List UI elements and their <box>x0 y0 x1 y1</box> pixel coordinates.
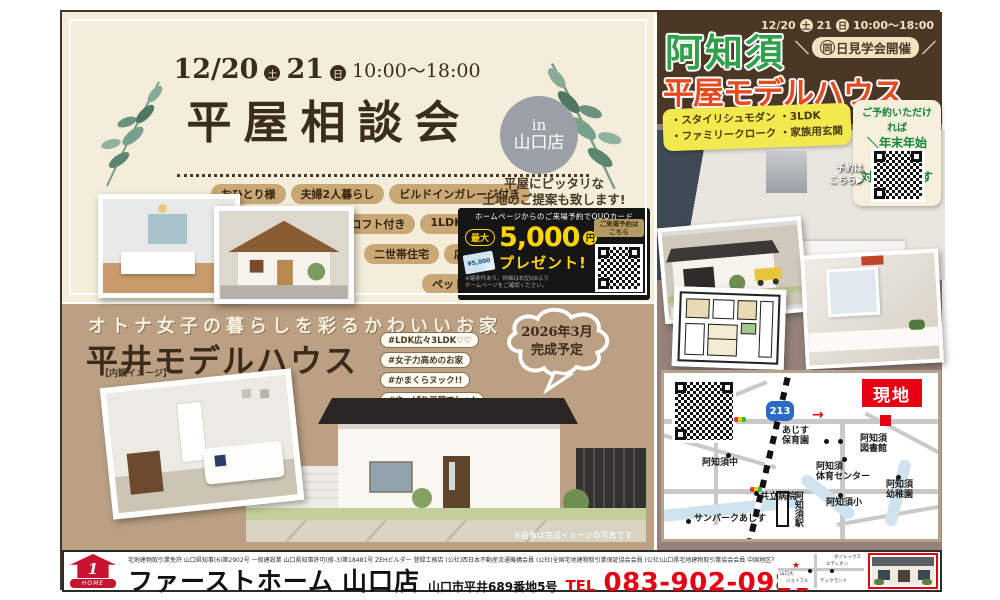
poi-kindergarten: 阿知須幼稚園 <box>886 481 913 501</box>
logo-home-label: HOME <box>70 579 116 588</box>
mini-map-label: ジョイフル <box>786 580 809 585</box>
same-day-tour-badge: ＼ 同 日見学会開催 ／ <box>795 37 936 58</box>
mini-map-label: 山口大 <box>780 573 794 578</box>
store-photo <box>868 553 938 589</box>
poi-hospital: 共立病院 <box>760 493 796 503</box>
address: 山口市平井689番地5号 <box>428 578 557 598</box>
event-time: 10:00～18:00 <box>352 56 481 85</box>
sunday-circle: 日 <box>330 65 346 81</box>
mini-map-label: ダイレックス <box>834 556 861 561</box>
binder-clip <box>861 251 884 265</box>
sunday-circle: 日 <box>836 19 849 32</box>
event-date: 12/20 土 21 日 10:00～18:00 <box>761 17 934 33</box>
date-value: 12/20 <box>173 54 258 85</box>
poi-nursery: あじす保育園 <box>782 427 809 447</box>
bush <box>922 579 932 585</box>
dining-table <box>127 451 163 495</box>
quo-present: プレゼント! <box>499 252 587 273</box>
main-house-render <box>244 370 648 542</box>
cushion <box>214 455 226 467</box>
company-name: ファーストホーム <box>128 562 334 598</box>
poi-gym: 阿知須体育センター <box>816 463 870 483</box>
quo-card-icon: ¥5,000 <box>463 251 496 275</box>
saturday-circle: 土 <box>264 65 280 81</box>
site-label: 現地 <box>862 379 922 407</box>
flyer: 12/20 土 21 日 10:00～18:00 平屋相談会 in 山口店 おひ… <box>60 10 940 590</box>
footer-bar: 1 HOME 宅地建物取引業免許 山口県知事(6)第2902号 一般建設業 山口… <box>62 550 942 592</box>
pendant-light <box>158 204 167 213</box>
company-logo: 1 HOME <box>70 554 116 588</box>
quo-campaign-box: ホームページからのご来場予約でQUOカード 最大 5,000 円 ¥5,000 … <box>458 208 650 300</box>
store-door <box>898 570 910 582</box>
route-213-shield: 213 <box>766 401 794 421</box>
completion-date: 2026年3月 完成予定 <box>492 324 622 359</box>
photo-vanity <box>800 248 944 369</box>
poi-dot <box>686 519 691 524</box>
poi-library: 阿知須図書館 <box>860 435 887 455</box>
event-title: 平屋相談会 <box>154 86 504 151</box>
bush <box>874 579 884 585</box>
left-panel: 12/20 土 21 日 10:00～18:00 平屋相談会 in 山口店 おひ… <box>62 12 654 302</box>
photo-living-interior <box>100 368 305 519</box>
tel-label: TEL <box>565 577 595 598</box>
road-line <box>814 554 817 588</box>
decor-slash: ／ <box>922 38 936 58</box>
vanity-mirror <box>826 266 880 317</box>
poi-junior-high: 阿知須中 <box>702 459 738 469</box>
poi-elementary: 阿知須小 <box>826 499 862 509</box>
poi-dot <box>754 491 759 496</box>
badge-store: 山口店 <box>514 134 565 154</box>
right-panel: 12/20 土 21 日 10:00～18:00 ＼ 同 日見学会開催 ／ 阿知… <box>654 12 942 550</box>
feature-tag: 二世帯住宅 <box>364 244 439 264</box>
vanity-counter <box>808 327 939 353</box>
photo-house-exterior <box>214 206 354 304</box>
quo-amount: 5,000 <box>499 224 579 251</box>
poi-dot <box>824 439 829 444</box>
site-star: ★ <box>792 562 800 571</box>
hashtag: #LDK広々3LDK♡♡ <box>380 332 479 348</box>
route-arrow: → <box>812 407 824 423</box>
traffic-signal <box>734 417 746 422</box>
qr-code <box>871 148 925 202</box>
circled-char: 同 <box>820 40 835 55</box>
qr-code <box>595 244 643 292</box>
reserve-here-label: 予約は こちら▶ <box>829 164 863 187</box>
mini-map-label: テックランド <box>820 580 847 585</box>
interior-image-label: 【内観イメージ】 <box>100 366 172 379</box>
middle-panel: オトナ女子の暮らしを彩るかわいいお家 平井モデルハウス #LDK広々3LDK♡♡… <box>62 302 654 550</box>
qr-code-map <box>672 379 736 443</box>
render-note: ※画像は完成イメージの写真です <box>514 530 633 541</box>
area-map: 阿知須駅 現地 → 213 あじす保育園 阿知須図書館 阿知須中 阿知須体育セン… <box>661 370 941 542</box>
hashtag: #女子力高めのお家 <box>380 352 471 368</box>
features-box: ・スタイリシュモダン ・3LDK ・ファミリークローク ・家族用玄関 <box>662 103 851 151</box>
road-line <box>778 568 864 571</box>
company-row: ファーストホーム 山口店 山口市平井689番地5号 TEL 083-902-09… <box>128 562 812 598</box>
footer-mini-map: ★ ダイレックス エディオン 山口大 ジョイフル テックランド <box>778 554 864 588</box>
wall-art <box>241 388 251 398</box>
event-date: 12/20 土 21 日 10:00～18:00 <box>152 54 502 85</box>
kitchen-island <box>121 252 195 275</box>
store-roof <box>872 557 934 566</box>
quo-max: 最大 <box>465 229 495 246</box>
kitchen-tile <box>148 214 188 244</box>
photo-floor-plan <box>672 286 787 370</box>
land-proposal-note: 平屋にピッタリな 土地のご提案も致します! <box>460 176 648 207</box>
store-badge: in 山口店 <box>500 96 578 174</box>
logo-house-icon: 1 <box>70 554 116 578</box>
reservation-label: ご来場予約は こちら <box>594 219 644 237</box>
mini-map-label: エディオン <box>826 563 848 568</box>
decor-slash: ＼ <box>795 38 809 58</box>
house-exterior-graphic <box>219 211 349 299</box>
badge-in: in <box>532 117 546 134</box>
poi-dot <box>830 569 834 573</box>
feature-tag: 夫婦2人暮らし <box>291 184 385 204</box>
plant <box>909 320 926 331</box>
floor-plan-graphic <box>676 290 782 366</box>
poi-sunpark: サンパークあじす <box>694 515 766 525</box>
saturday-circle: 土 <box>800 19 813 32</box>
range-hood <box>766 151 806 193</box>
date-value: 21 <box>286 54 324 85</box>
wall-art <box>260 389 270 399</box>
site-marker <box>880 415 891 426</box>
flyer-canvas: 12/20 土 21 日 10:00～18:00 平屋相談会 in 山口店 おひ… <box>0 0 1000 600</box>
poi-dot <box>808 569 812 573</box>
store-name: 山口店 <box>342 562 420 598</box>
poi-dot <box>838 439 843 444</box>
